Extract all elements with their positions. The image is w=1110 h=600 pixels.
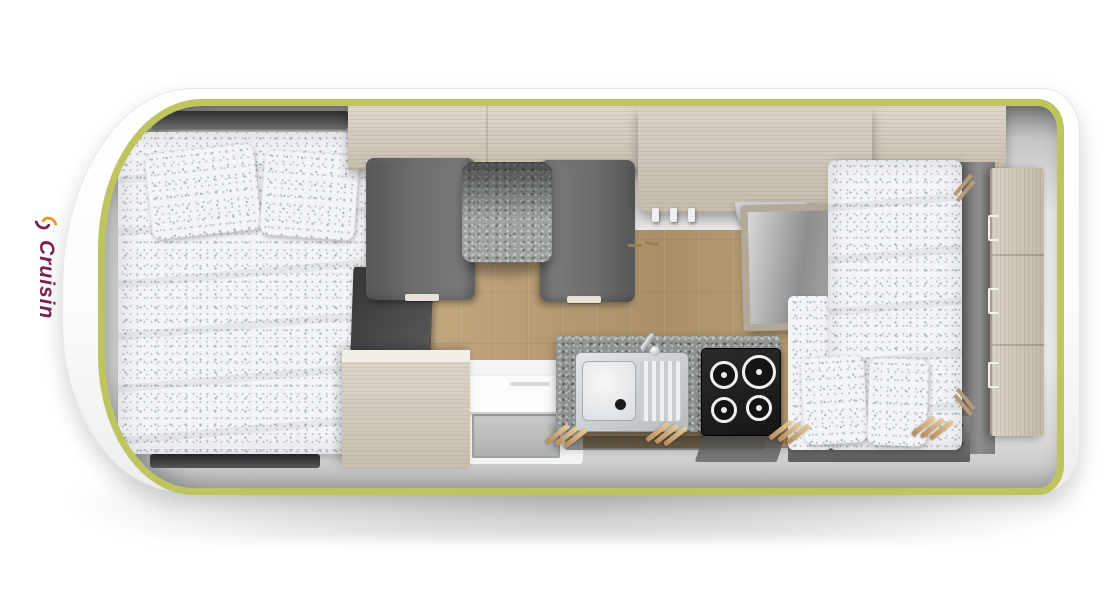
blind-slats (778, 416, 812, 448)
double-bed-pillow-left (144, 142, 262, 240)
blind-slats (555, 420, 589, 452)
step-handle (510, 382, 550, 386)
entry-step-unit (462, 376, 560, 412)
cabinet-top-sliver (342, 350, 470, 362)
table-sheen (462, 162, 552, 262)
bench-handle (405, 294, 439, 301)
drawer-handle (988, 288, 998, 314)
side-cabinet (342, 350, 470, 468)
drawer-seam (992, 254, 1044, 256)
window-slot (150, 454, 320, 468)
campervan-floorplan: Cruisin (0, 0, 1110, 600)
coat-hook (688, 208, 695, 222)
skylight-hatch (152, 111, 348, 129)
gas-hob (701, 348, 781, 436)
coat-hook (652, 208, 659, 222)
cabinet-seam (486, 106, 488, 168)
blind-slats (921, 412, 955, 444)
sink-drainer (640, 361, 681, 421)
brand-text: Cruisin (34, 240, 58, 319)
dinette-bench-left (366, 158, 475, 300)
burner (742, 355, 776, 389)
drawer-handle (988, 362, 998, 388)
dinette-table (462, 162, 552, 262)
bench-handle (567, 296, 601, 303)
dinette-bench-right (540, 160, 635, 302)
coat-hook (670, 208, 677, 222)
burner (746, 395, 772, 421)
brand-logo: Cruisin (26, 210, 66, 319)
swirl-icon (33, 210, 59, 236)
wall-hook (628, 244, 642, 247)
entry-mat (472, 414, 560, 458)
sink-drain (615, 399, 626, 410)
burner (711, 397, 737, 423)
sink-basin (582, 361, 636, 421)
burner (710, 361, 738, 389)
blind-slats (655, 418, 689, 450)
drawer-handle (988, 215, 998, 241)
vehicle-interior (98, 99, 1064, 495)
rear-drawer-cabinet (990, 168, 1044, 436)
drawer-seam (992, 344, 1044, 346)
faucet-base (650, 346, 660, 356)
double-bed-pillow-right (259, 149, 360, 241)
